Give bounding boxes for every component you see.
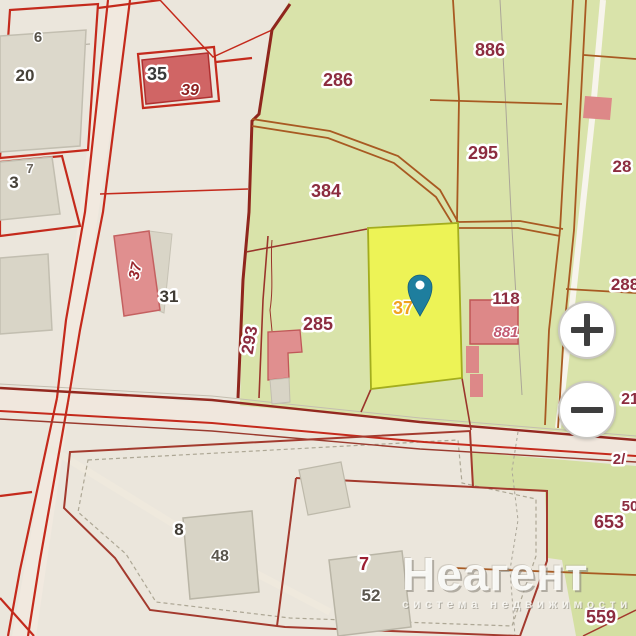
parcel-label-39: 39	[181, 82, 199, 99]
parcel-label-21: 21	[621, 391, 636, 408]
building-label-48: 48	[211, 548, 229, 565]
parcel-label-28: 28	[613, 157, 632, 176]
parcel-label-653: 653	[594, 512, 624, 532]
parcel-label-6: 6	[34, 29, 42, 46]
parcel-label-285: 285	[303, 314, 333, 334]
cadastral-map[interactable]: 6 20 35 39 7 3 37 31 286 886 295 384 285…	[0, 0, 636, 636]
parcel-label-8: 8	[174, 520, 183, 539]
parcel-label-7-small: 7	[26, 161, 33, 176]
building-pink-small	[470, 374, 483, 397]
building-grey-285	[270, 378, 290, 404]
parcel-label-2-slash: 2/	[613, 451, 626, 468]
parcel-label-118: 118	[492, 289, 519, 308]
building-pink-northeast	[583, 96, 612, 120]
building-label-52: 52	[362, 586, 381, 605]
building-grey-small	[299, 462, 350, 515]
building-label-881: 881	[493, 324, 518, 341]
zoom-in-button[interactable]	[558, 301, 616, 359]
building-grey	[0, 254, 52, 334]
parcel-label-20: 20	[16, 66, 35, 85]
parcel-label-50: 50	[622, 498, 636, 515]
parcel-label-7: 7	[359, 554, 369, 574]
parcel-label-35: 35	[147, 64, 167, 84]
building-pink-small	[466, 346, 479, 373]
building-grey	[0, 30, 86, 152]
minus-icon	[571, 407, 603, 413]
parcel-label-3: 3	[9, 173, 18, 192]
parcel-label-295: 295	[468, 143, 498, 163]
parcel-label-288: 288	[611, 275, 636, 294]
zoom-out-button[interactable]	[558, 381, 616, 439]
parcel-label-886: 886	[475, 40, 505, 60]
selected-parcel-label: 37	[393, 298, 413, 318]
parcel-label-559: 559	[586, 607, 616, 627]
parcel-label-31: 31	[160, 287, 179, 306]
parcel-label-286: 286	[323, 70, 353, 90]
plus-icon	[584, 314, 590, 346]
map-viewport: 6 20 35 39 7 3 37 31 286 886 295 384 285…	[0, 0, 636, 636]
parcel-label-384: 384	[311, 181, 341, 201]
